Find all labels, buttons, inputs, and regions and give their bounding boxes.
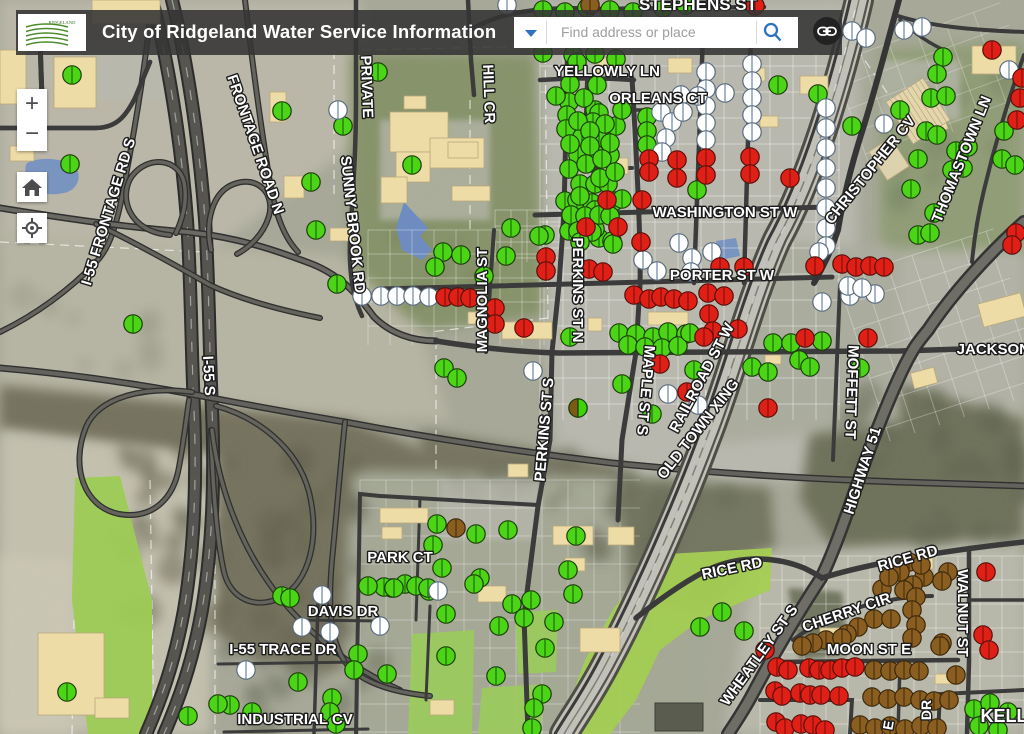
svg-text:KELL: KELL (981, 706, 1024, 726)
svg-text:I-55 TRACE DR: I-55 TRACE DR (229, 641, 337, 658)
svg-text:DAVIS DR: DAVIS DR (308, 603, 379, 620)
svg-text:MOON ST E: MOON ST E (827, 641, 911, 658)
svg-text:YELLOWLY LN: YELLOWLY LN (554, 63, 660, 80)
svg-text:HILL CR: HILL CR (479, 64, 498, 124)
svg-text:PORTER ST W: PORTER ST W (670, 267, 775, 284)
svg-text:INDUSTRIAL CV: INDUSTRIAL CV (237, 711, 353, 728)
svg-text:JACKSON ST: JACKSON ST (957, 341, 1024, 358)
svg-text:MAGNOLIA ST: MAGNOLIA ST (474, 248, 491, 352)
svg-text:PERKINS ST N: PERKINS ST N (569, 237, 586, 342)
svg-text:WASHINGTON ST W: WASHINGTON ST W (653, 204, 799, 221)
svg-text:MOFFETT ST: MOFFETT ST (841, 345, 861, 440)
svg-text:PRIVATE: PRIVATE (357, 55, 376, 118)
svg-text:WALNUT ST: WALNUT ST (954, 569, 971, 657)
svg-text:I-55 S: I-55 S (199, 355, 218, 396)
svg-text:ORLEANS CT: ORLEANS CT (609, 90, 707, 107)
svg-text:PARK CT: PARK CT (367, 549, 433, 566)
svg-text:DR: DR (918, 700, 934, 720)
